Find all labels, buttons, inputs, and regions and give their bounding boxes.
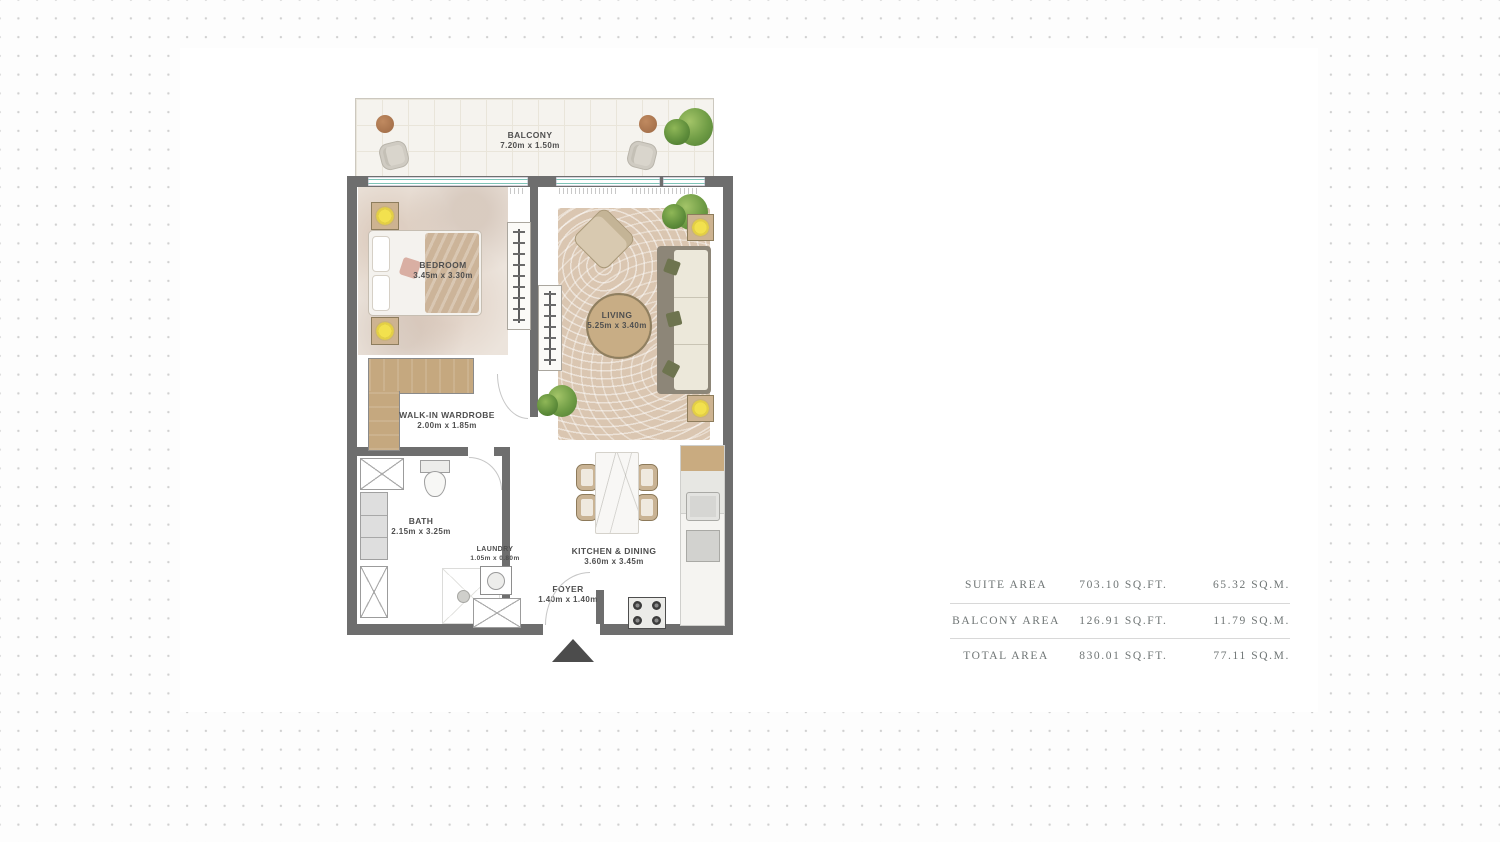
entry-door-arc (545, 572, 590, 625)
window-living (556, 177, 660, 186)
dining-chair-icon (636, 464, 658, 491)
nightstand-icon (371, 202, 399, 230)
table-row: SUITE AREA 703.10 SQ.FT. 65.32 SQ.M. (950, 568, 1290, 603)
closet-hangers-icon (513, 231, 525, 320)
area-label: SUITE AREA (950, 579, 1062, 591)
shaft-icon (473, 598, 521, 628)
window-living-2 (663, 177, 705, 186)
side-table-icon (687, 214, 714, 241)
curtain-icon (559, 188, 619, 194)
wardrobe-label: WALK-IN WARDROBE 2.00m x 1.85m (387, 410, 507, 431)
stove-icon (628, 597, 666, 629)
lamp-icon (375, 321, 395, 341)
area-label: TOTAL AREA (950, 650, 1062, 662)
door-arc (469, 457, 502, 490)
lamp-icon (691, 218, 710, 237)
toilet-icon (424, 471, 446, 497)
dining-table-icon (595, 452, 639, 534)
wall-wardrobe-bath (347, 447, 468, 456)
laundry-label: LAUNDRY 1.05m x 0.80m (460, 546, 530, 563)
wardrobe-name: WALK-IN WARDROBE (387, 410, 507, 421)
area-sqm: 65.32 SQ.M. (1185, 579, 1290, 591)
page: { "plan": { "balcony": {"name": "BALCONY… (0, 0, 1500, 842)
bath-label: BATH 2.15m x 3.25m (361, 516, 481, 537)
balcony-side-table-icon (639, 115, 657, 133)
table-row: BALCONY AREA 126.91 SQ.FT. 11.79 SQ.M. (950, 603, 1290, 639)
wardrobe-dims: 2.00m x 1.85m (387, 421, 507, 431)
wall-left (347, 176, 357, 635)
area-sqm: 11.79 SQ.M. (1185, 615, 1290, 627)
window-bedroom (368, 177, 528, 186)
bedroom-name: BEDROOM (383, 260, 503, 271)
area-sqft: 830.01 SQ.FT. (1062, 650, 1184, 662)
laundry-name: LAUNDRY (460, 546, 530, 555)
kitchen-name: KITCHEN & DINING (544, 546, 684, 557)
laundry-dims: 1.05m x 0.80m (460, 555, 530, 563)
shower-drain-icon (457, 590, 470, 603)
kitchen-sink-icon (686, 492, 720, 521)
living-closet-icon (538, 285, 562, 371)
curtain-icon (632, 188, 698, 194)
table-row: TOTAL AREA 830.01 SQ.FT. 77.11 SQ.M. (950, 638, 1290, 674)
entrance-arrow-icon (552, 639, 594, 662)
balcony-dims: 7.20m x 1.50m (470, 141, 590, 151)
burner-icon (652, 616, 661, 625)
living-name: LIVING (562, 310, 672, 321)
living-plant-icon (547, 385, 577, 417)
lamp-icon (375, 206, 395, 226)
burner-icon (652, 601, 661, 610)
bedroom-label: BEDROOM 3.45m x 3.30m (383, 260, 503, 281)
area-sqm: 77.11 SQ.M. (1185, 650, 1290, 662)
balcony-name: BALCONY (470, 130, 590, 141)
kitchen-appliance-icon (686, 530, 720, 562)
bath-dims: 2.15m x 3.25m (361, 527, 481, 537)
balcony-side-table-icon (376, 115, 394, 133)
burner-icon (633, 616, 642, 625)
kitchen-label: KITCHEN & DINING 3.60m x 3.45m (544, 546, 684, 567)
bedroom-dims: 3.45m x 3.30m (383, 271, 503, 281)
dining-chair-icon (636, 494, 658, 521)
area-table: SUITE AREA 703.10 SQ.FT. 65.32 SQ.M. BAL… (950, 568, 1290, 674)
bedroom-closet-icon (507, 222, 531, 330)
wall-bedroom-living (530, 187, 538, 417)
lamp-icon (691, 399, 710, 418)
area-sqft: 703.10 SQ.FT. (1062, 579, 1184, 591)
closet-hangers-icon (544, 293, 556, 364)
balcony-plant-icon (677, 108, 713, 146)
kitchen-dims: 3.60m x 3.45m (544, 557, 684, 567)
living-dims: 5.25m x 3.40m (562, 321, 672, 331)
balcony-label: BALCONY 7.20m x 1.50m (470, 130, 590, 151)
wardrobe-cabinet-icon (368, 358, 474, 394)
area-sqft: 126.91 SQ.FT. (1062, 615, 1184, 627)
burner-icon (633, 601, 642, 610)
living-label: LIVING 5.25m x 3.40m (562, 310, 672, 331)
area-label: BALCONY AREA (950, 615, 1062, 627)
bath-name: BATH (361, 516, 481, 527)
kitchen-counter (680, 445, 725, 626)
counter-wood-icon (681, 446, 724, 471)
washing-machine-icon (480, 566, 512, 595)
nightstand-icon (371, 317, 399, 345)
shaft-icon (360, 458, 404, 490)
floor-plan: BALCONY 7.20m x 1.50m BEDROOM 3.45m x 3.… (347, 98, 733, 660)
side-table-icon (687, 395, 714, 422)
shaft-icon (360, 566, 388, 618)
